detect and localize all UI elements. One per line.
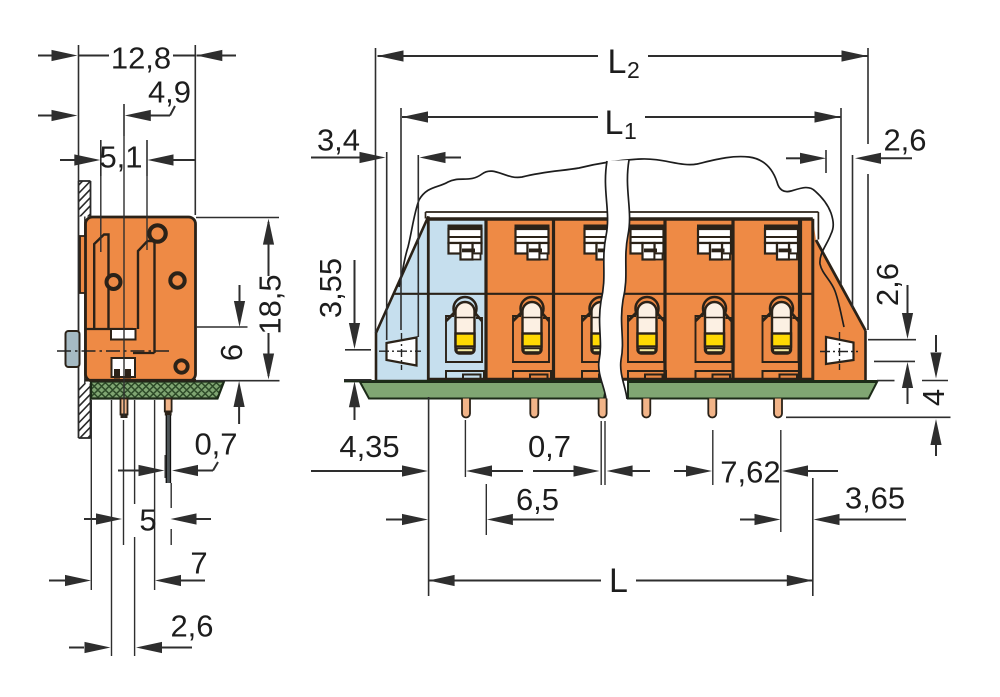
svg-text:2: 2 (627, 57, 640, 83)
svg-text:18,5: 18,5 (253, 274, 288, 334)
svg-text:3,55: 3,55 (313, 258, 348, 318)
svg-text:7,62: 7,62 (720, 455, 780, 490)
svg-text:3,4: 3,4 (317, 123, 360, 158)
svg-text:0,7: 0,7 (528, 429, 571, 464)
svg-text:L: L (605, 104, 624, 142)
svg-text:4,35: 4,35 (339, 429, 399, 464)
svg-text:6,5: 6,5 (516, 482, 559, 517)
svg-text:1: 1 (624, 118, 637, 144)
svg-text:4: 4 (916, 389, 951, 406)
svg-text:2,6: 2,6 (170, 609, 213, 644)
svg-text:0,7: 0,7 (194, 427, 237, 462)
svg-text:3,65: 3,65 (845, 481, 905, 516)
svg-text:2,6: 2,6 (870, 263, 905, 306)
svg-text:7: 7 (190, 546, 207, 581)
svg-text:6: 6 (214, 344, 249, 361)
svg-text:L: L (609, 562, 628, 600)
svg-text:12,8: 12,8 (111, 41, 171, 76)
svg-text:5,1: 5,1 (99, 140, 142, 175)
svg-text:5: 5 (139, 503, 156, 538)
svg-text:L: L (608, 43, 627, 81)
svg-text:4,9: 4,9 (148, 75, 191, 110)
svg-text:2,6: 2,6 (883, 123, 926, 158)
